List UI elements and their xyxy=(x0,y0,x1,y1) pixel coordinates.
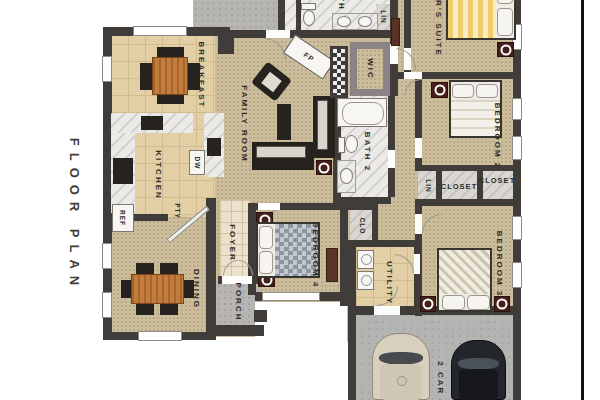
room-label-clo: CLO xyxy=(359,218,366,235)
chair xyxy=(140,63,152,90)
wall xyxy=(388,96,395,197)
label-closet-b: CLOSET xyxy=(479,176,515,185)
wall xyxy=(348,240,420,247)
porch-pillar xyxy=(254,310,267,322)
nightstand-lamp xyxy=(497,42,514,57)
window xyxy=(262,292,320,301)
pillow xyxy=(452,84,474,98)
breakfast-table xyxy=(152,57,188,95)
nightstand-lamp xyxy=(420,296,436,312)
room-label-bedroom4: BEDROOM 4 xyxy=(311,222,320,288)
pillow xyxy=(259,251,273,274)
label-refrigerator: REF xyxy=(119,210,126,226)
wall xyxy=(477,165,483,205)
label-lin-hall: LIN xyxy=(425,179,432,192)
window xyxy=(102,292,112,318)
room-label-owners-bath: BATH xyxy=(337,0,346,11)
room-label-dining: DINING xyxy=(192,269,201,309)
window xyxy=(512,262,522,288)
pillow xyxy=(497,0,513,4)
window xyxy=(512,98,522,120)
pillow xyxy=(497,8,513,36)
room-label-owners-suite: OWNER'S SUITE xyxy=(434,0,443,57)
toilet-tank xyxy=(301,3,316,10)
wall xyxy=(415,199,515,206)
owners-bed-duvet xyxy=(448,0,496,38)
room-label-porch: PORCH xyxy=(234,283,243,322)
window xyxy=(512,216,522,240)
pillow xyxy=(442,295,465,310)
nightstand-lamp xyxy=(494,296,510,312)
sink xyxy=(340,168,353,184)
wall xyxy=(372,204,378,247)
room-label-utility: UTILITY xyxy=(385,261,394,305)
wall xyxy=(340,203,348,306)
label-closet-a: CLOSET xyxy=(441,182,477,191)
toilet-bowl xyxy=(345,135,358,153)
cooktop xyxy=(207,138,221,156)
chair xyxy=(160,303,178,315)
label-dishwasher: DW xyxy=(194,157,201,170)
wall xyxy=(206,325,264,336)
page-border-line xyxy=(581,0,584,400)
sink xyxy=(337,16,351,27)
floor-plan: FP xyxy=(0,0,600,400)
room-label-garage: 2 CAR GARAGE xyxy=(436,361,445,400)
room-label-breakfast: BREAKFAST xyxy=(197,42,206,109)
nightstand-lamp xyxy=(431,82,448,98)
wall xyxy=(348,240,356,314)
sofa-cushions xyxy=(317,100,328,150)
room-label-bedroom3: BEDROOM 3 xyxy=(495,231,504,297)
wall xyxy=(513,0,521,400)
window xyxy=(133,26,187,36)
dresser xyxy=(326,248,338,282)
chair xyxy=(136,303,154,315)
sofa-cushions xyxy=(256,146,306,158)
room-label-family-room: FAMILY ROOM xyxy=(240,85,249,163)
pillow xyxy=(259,226,273,249)
stove xyxy=(113,158,133,184)
shower xyxy=(330,46,348,98)
washer-door xyxy=(361,254,372,265)
pillow xyxy=(476,84,498,98)
floor-plan-image: FP xyxy=(0,0,600,400)
car-black-roof xyxy=(459,369,498,400)
pillow xyxy=(467,295,490,310)
window xyxy=(138,331,182,341)
dryer-door xyxy=(361,275,372,286)
room-label-bath2: BATH 2 xyxy=(363,132,372,172)
cabinet xyxy=(391,18,400,46)
toilet-bowl xyxy=(303,10,315,26)
end-table-lamp xyxy=(316,160,332,175)
dining-table xyxy=(131,274,184,304)
label-pantry: PTY xyxy=(174,203,181,219)
window xyxy=(512,136,522,160)
wall xyxy=(228,30,394,38)
label-lin-bath: LIN xyxy=(380,10,387,23)
room-label-foyer: FOYER xyxy=(228,224,237,262)
wall xyxy=(206,198,216,338)
fireplace-label: FP xyxy=(303,51,316,63)
bedroom3-duvet xyxy=(439,250,490,294)
patio-floor xyxy=(193,0,280,30)
window xyxy=(102,56,112,82)
room-label-kitchen: KITCHEN xyxy=(154,150,163,200)
room-label-wic: WIC xyxy=(366,58,375,80)
toilet-tank xyxy=(338,137,345,153)
page-title: FLOOR PLAN xyxy=(67,138,82,293)
sink xyxy=(358,16,372,27)
wall xyxy=(348,306,356,400)
car-beige-emblem xyxy=(397,376,407,386)
window xyxy=(102,243,112,269)
bathtub-inner xyxy=(342,102,384,125)
room-label-bedroom2: BEDROOM 2 xyxy=(493,103,502,169)
wall xyxy=(278,0,285,34)
coffee-table xyxy=(277,104,291,140)
kitchen-sink xyxy=(141,116,163,130)
